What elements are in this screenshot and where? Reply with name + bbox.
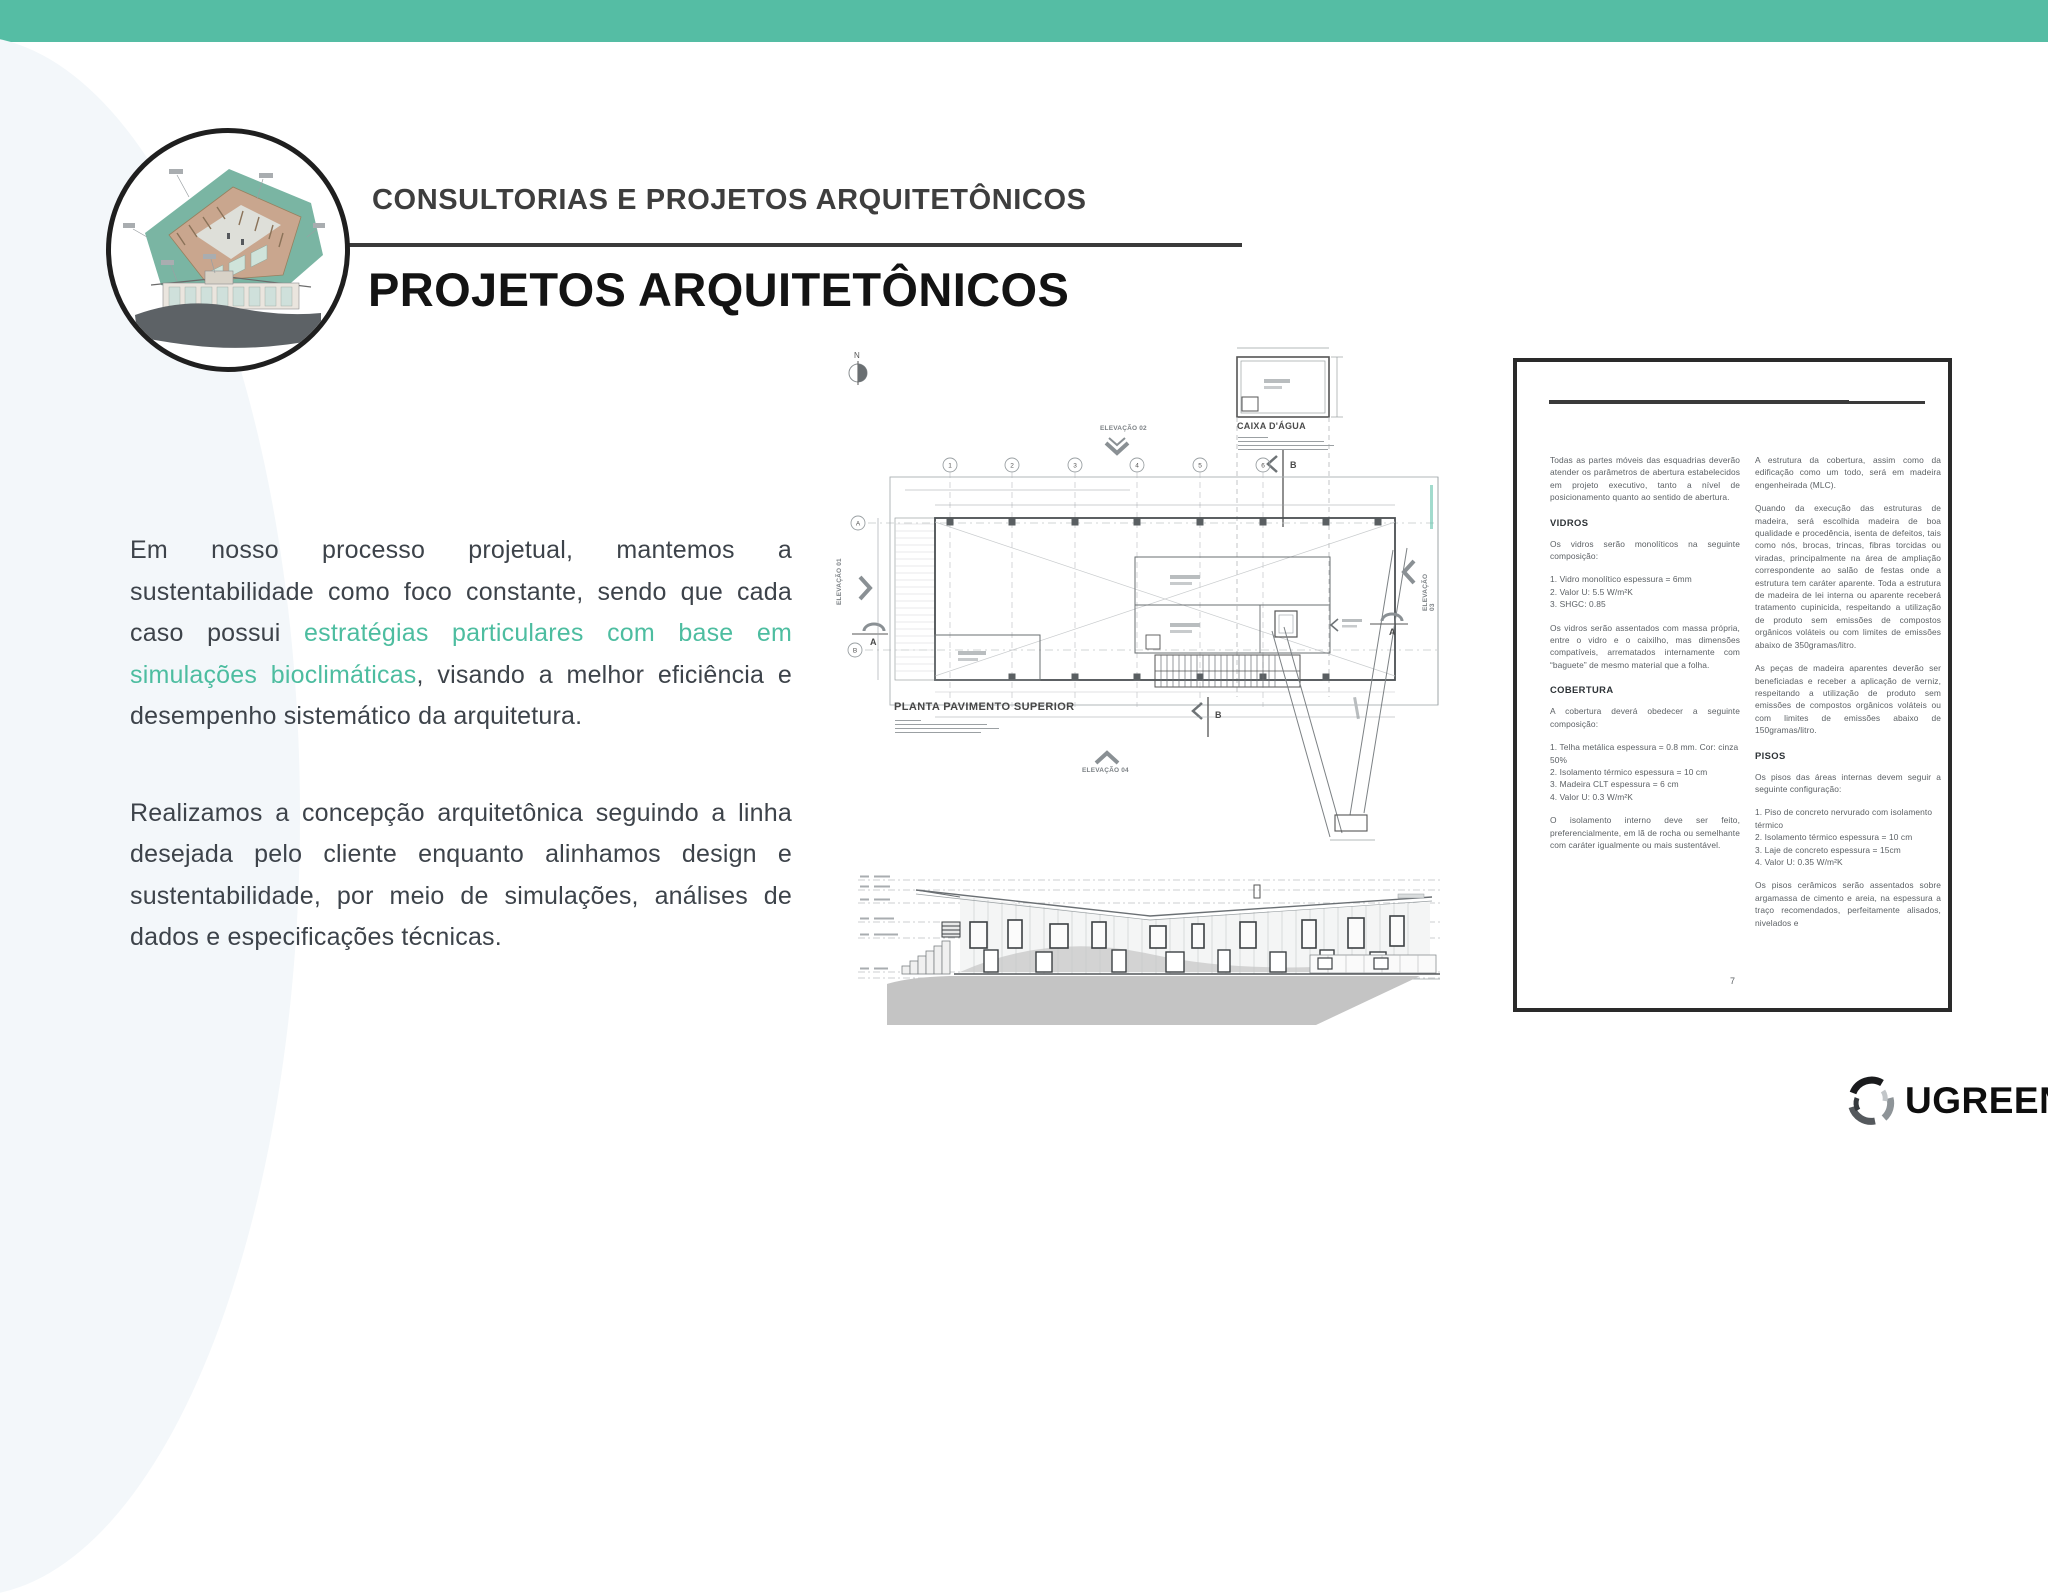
- page-title: PROJETOS ARQUITETÔNICOS: [368, 262, 1069, 317]
- svg-text:B: B: [853, 648, 857, 655]
- doc-heading-vidros: VIDROS: [1550, 517, 1740, 528]
- section-a-left-letter: A: [870, 637, 877, 647]
- elevation-02-chevron: [1106, 438, 1128, 453]
- columns-top: [947, 519, 1382, 526]
- doc-paragraph: Os pisos das áreas internas devem seguir…: [1755, 771, 1941, 796]
- rooms-right: [1135, 557, 1330, 653]
- elevation-03-label: ELEVAÇÃO 03: [1422, 573, 1436, 611]
- doc-paragraph: A cobertura deverá obedecer a seguinte c…: [1550, 705, 1740, 730]
- plan-title-notes: [895, 717, 999, 733]
- doc-right-column: A estrutura da cobertura, assim como da …: [1755, 454, 1941, 940]
- ugreen-logo-icon: [1843, 1074, 1899, 1130]
- spec-document-page: Todas as partes móveis das esquadrias de…: [1513, 358, 1952, 1012]
- elevation-drawing: [850, 860, 1450, 1040]
- svg-text:1: 1: [948, 463, 952, 470]
- grid-lines-vertical: [950, 472, 1263, 707]
- doc-paragraph: Todas as partes móveis das esquadrias de…: [1550, 454, 1740, 504]
- plan-title-label: PLANTA PAVIMENTO SUPERIOR: [894, 701, 1075, 713]
- access-ramp: [1272, 548, 1407, 840]
- doc-list: 1. Vidro monolítico espessura = 6mm 2. V…: [1550, 573, 1740, 610]
- room-lower-left: [935, 635, 1040, 680]
- intro-paragraph: Em nosso processo projetual, mantemos a …: [130, 530, 792, 738]
- ground-mass: [887, 976, 1420, 1025]
- svg-text:5: 5: [1198, 463, 1202, 470]
- elevation-04-label: ELEVAÇÃO 04: [1082, 767, 1129, 774]
- svg-text:3: 3: [1073, 463, 1077, 470]
- deck-hatch: [895, 518, 935, 680]
- mini-ground: [135, 303, 321, 347]
- project-render-badge: [106, 128, 350, 372]
- grid-bubbles: [943, 458, 1270, 472]
- edge-tag: [1430, 485, 1433, 529]
- doc-paragraph: A estrutura da cobertura, assim como da …: [1755, 454, 1941, 491]
- svg-text:N: N: [854, 351, 860, 360]
- section-a-left-marker: [852, 624, 888, 634]
- elevation-svg: [850, 860, 1450, 1040]
- doc-heading-pisos: PISOS: [1755, 750, 1941, 761]
- section-kicker: CONSULTORIAS E PROJETOS ARQUITETÔNICOS: [372, 184, 1087, 217]
- doc-title-rule: [1549, 400, 1849, 404]
- svg-text:A: A: [856, 521, 861, 528]
- elevation-01-label: ELEVAÇÃO 01: [836, 558, 843, 605]
- louver-block: [942, 922, 960, 937]
- render-illustration: [111, 133, 335, 357]
- doc-list: 1. Telha metálica espessura = 0.8 mm. Co…: [1550, 741, 1740, 803]
- doc-heading-cobertura: COBERTURA: [1550, 684, 1740, 695]
- ramp-label-bar: [1353, 697, 1360, 719]
- doc-title-rule-thin: [1849, 401, 1925, 404]
- right-annex: [1310, 955, 1436, 973]
- elevation-02-label: ELEVAÇÃO 02: [1100, 425, 1147, 432]
- caixa-dagua-label: CAIXA D'ÁGUA: [1237, 421, 1306, 431]
- doc-paragraph: Quando da execução das estruturas de mad…: [1755, 502, 1941, 651]
- doc-paragraph: Os pisos cerâmicos serão assentados sobr…: [1755, 879, 1941, 929]
- svg-text:4: 4: [1135, 463, 1139, 470]
- mini-caixa: [205, 271, 233, 284]
- caixa-dagua-notes: [1238, 434, 1334, 450]
- roof-edge-tag: [1398, 894, 1424, 898]
- doc-left-column: Todas as partes móveis das esquadrias de…: [1550, 454, 1740, 862]
- chimney: [1254, 885, 1260, 898]
- section-b-bottom-letter: B: [1215, 710, 1222, 720]
- grid-numbers: 1 2 3 4 5 6: [948, 463, 1265, 470]
- svg-text:2: 2: [1010, 463, 1014, 470]
- doc-page-number: 7: [1517, 976, 1948, 986]
- section-b-top-marker: [1268, 450, 1283, 527]
- doc-list: 1. Piso de concreto nervurado com isolam…: [1755, 806, 1941, 868]
- section-b-top-letter: B: [1290, 460, 1297, 470]
- entry-stairs: [902, 941, 950, 974]
- section-a-right-letter: A: [1389, 627, 1396, 637]
- elevation-03-chevron: [1404, 561, 1414, 583]
- doc-paragraph: O isolamento interno deve ser feito, pre…: [1550, 814, 1740, 851]
- stairs-hatch: [1155, 655, 1300, 687]
- brand-footer: UGREEN: [1843, 1074, 2043, 1132]
- top-accent-bar: [0, 0, 2048, 42]
- second-paragraph: Realizamos a concepção arquitetônica seg…: [130, 793, 792, 959]
- section-a-right-marker: [1331, 614, 1408, 631]
- doc-paragraph: As peças de madeira aparentes deverão se…: [1755, 662, 1941, 736]
- doc-paragraph: Os vidros serão monolíticos na seguinte …: [1550, 538, 1740, 563]
- intro-copy: Em nosso processo projetual, mantemos a …: [130, 530, 792, 1014]
- north-compass: N: [849, 351, 867, 385]
- level-tags: [860, 876, 898, 970]
- svg-text:6: 6: [1261, 463, 1265, 470]
- elevation-04-chevron: [1096, 753, 1118, 763]
- brand-name: UGREEN: [1905, 1080, 2048, 1122]
- caixa-dagua-box: [1237, 348, 1343, 417]
- elevation-01-chevron: [860, 577, 870, 599]
- header-divider: [348, 243, 1242, 247]
- doc-paragraph: Os vidros serão assentados com massa pró…: [1550, 622, 1740, 672]
